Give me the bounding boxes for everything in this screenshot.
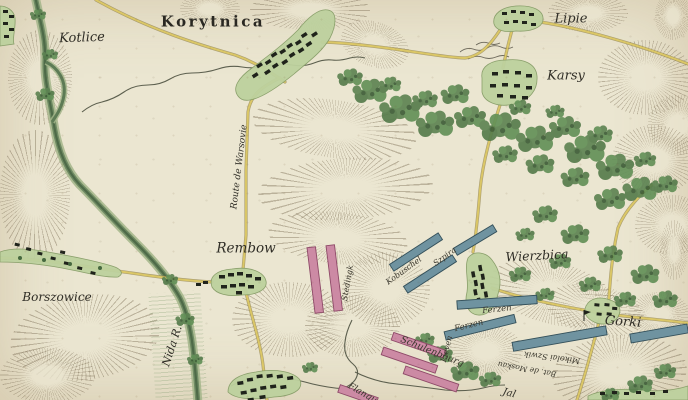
unit-label-stedingk: Stedingk [341,264,355,301]
road-label-route-varsovie: Route de Warsovie [230,124,249,210]
unit-label-ferzen-1: Ferzen [482,304,512,316]
place-label-kotlice: Kotlice [59,31,105,46]
place-label-rembow: Rembow [216,242,275,256]
river-label-nida: Nida R. [160,324,183,367]
partial-label: Jal [501,387,516,400]
unit-label-kobuschel: Kobuschel [385,255,424,286]
place-label-karsy: Karsy [547,70,585,83]
unit-label-ferzen-2: Ferzen [454,318,485,333]
place-label-borszowice: Borszowice [22,291,91,303]
historical-battle-map: Kotlice Korytnica Lipie Karsy Rembow Bor… [0,0,688,400]
unit-label-mikolai-szwik: Mikolai Szwik [523,350,580,365]
place-label-korytnica: Korytnica [161,15,265,30]
place-label-lipie: Lipie [555,13,588,26]
labels-layer: Kotlice Korytnica Lipie Karsy Rembow Bor… [0,0,688,400]
place-label-wierzbica: Wierzbica [505,248,569,264]
place-label-gorki: Gorki [604,314,641,330]
unit-label-bat-moskau: Bat. de Moskau [497,360,557,378]
unit-label-schulenbourg: Schulenbourg [399,335,465,369]
unit-label-flanqueurs: Flanqu [346,382,378,400]
unit-label-szpira: Szpira [432,246,458,268]
